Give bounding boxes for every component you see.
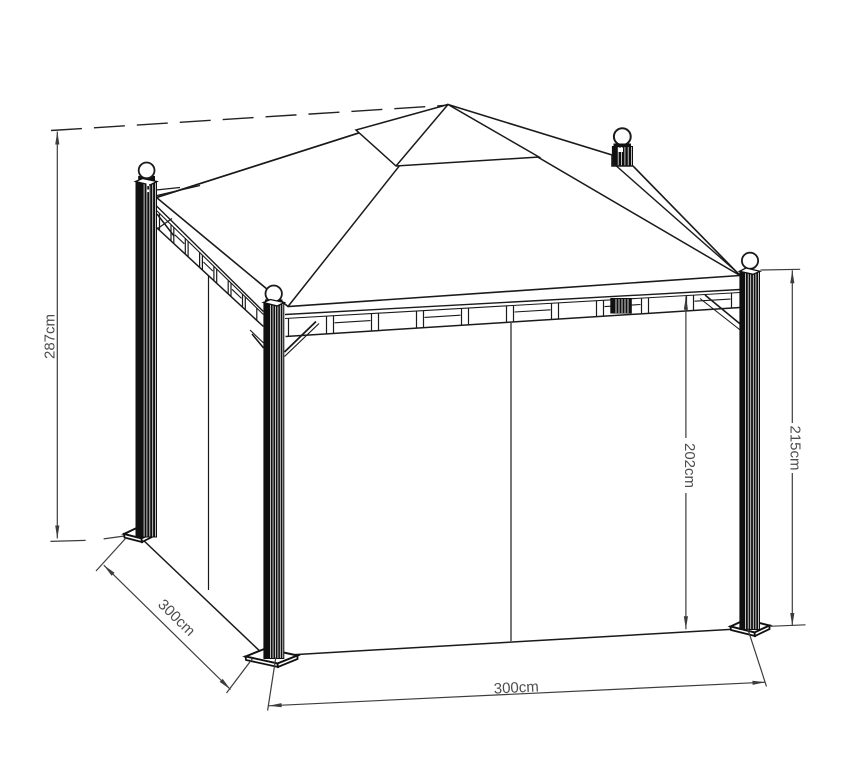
svg-text:300cm: 300cm	[493, 678, 539, 697]
svg-text:287cm: 287cm	[42, 314, 59, 359]
svg-text:300cm: 300cm	[154, 596, 198, 640]
svg-text:202cm: 202cm	[681, 443, 698, 488]
svg-text:215cm: 215cm	[787, 425, 804, 470]
